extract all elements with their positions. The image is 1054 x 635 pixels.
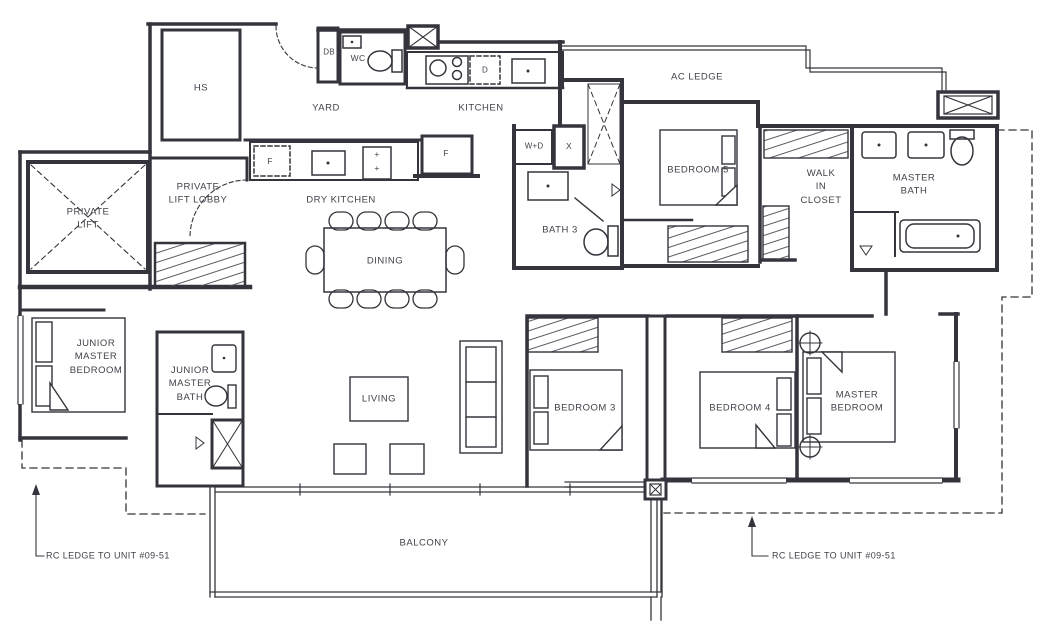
- room-label-balcony: BALCONY: [400, 536, 449, 549]
- room-label-bedroom-3: BEDROOM 3: [554, 401, 616, 414]
- fixture-label-fridge-kitchen: F: [443, 148, 449, 160]
- fixture-label-hob-burner-1: +: [374, 149, 379, 161]
- room-label-bath-3: BATH 3: [542, 223, 578, 236]
- rc-ledge-right-lines: [664, 130, 1032, 556]
- annotation-rc-ledge-right: RC LEDGE TO UNIT #09-51: [772, 550, 896, 563]
- room-label-dry-kitchen: DRY KITCHEN: [306, 193, 376, 206]
- balcony-walls: [210, 487, 662, 620]
- room-label-yard: YARD: [312, 101, 340, 114]
- room-label-dining: DINING: [367, 254, 403, 267]
- room-label-kitchen: KITCHEN: [458, 101, 503, 114]
- fixture-label-db: DB: [323, 46, 335, 57]
- room-label-bedroom-5: BEDROOM 5: [667, 163, 729, 176]
- room-label-walk-in-closet: WALK IN CLOSET: [800, 167, 841, 207]
- room-label-hs: HS: [194, 81, 208, 94]
- dry-kitchen-fixtures: [250, 136, 472, 180]
- junior-master-fixtures: [32, 318, 243, 468]
- room-label-living: LIVING: [362, 392, 396, 405]
- fixture-label-dishwasher: D: [482, 64, 488, 75]
- floor-plan: HS YARD WC KITCHEN DRY KITCHEN PRIVATE L…: [0, 0, 1054, 635]
- room-label-master-bedroom: MASTER BEDROOM: [831, 389, 884, 416]
- room-label-junior-master-bath: JUNIOR MASTER BATH: [169, 364, 212, 404]
- room-label-master-bath: MASTER BATH: [893, 172, 936, 199]
- fixture-label-washer-dryer: W+D: [525, 140, 544, 151]
- room-label-junior-master-bedroom: JUNIOR MASTER BEDROOM: [70, 337, 123, 377]
- fixture-label-hob-burner-2: +: [374, 163, 379, 175]
- room-label-private-lift: PRIVATE LIFT: [67, 206, 110, 233]
- annotation-rc-ledge-left: RC LEDGE TO UNIT #09-51: [46, 550, 170, 563]
- wardrobes: [155, 130, 848, 352]
- room-label-ac-ledge: AC LEDGE: [671, 70, 723, 83]
- rc-ledge-left-lines: [22, 440, 205, 556]
- living-furniture: [334, 341, 502, 474]
- room-label-bedroom-4: BEDROOM 4: [709, 401, 771, 414]
- floor-plan-drawing: [0, 0, 1054, 635]
- room-label-private-lift-lobby: PRIVATE LIFT LOBBY: [169, 181, 228, 208]
- fixture-label-fridge-dry-kitchen: F: [267, 156, 273, 168]
- fixture-label-shower-x: X: [566, 141, 572, 153]
- room-label-wc: WC: [351, 53, 366, 65]
